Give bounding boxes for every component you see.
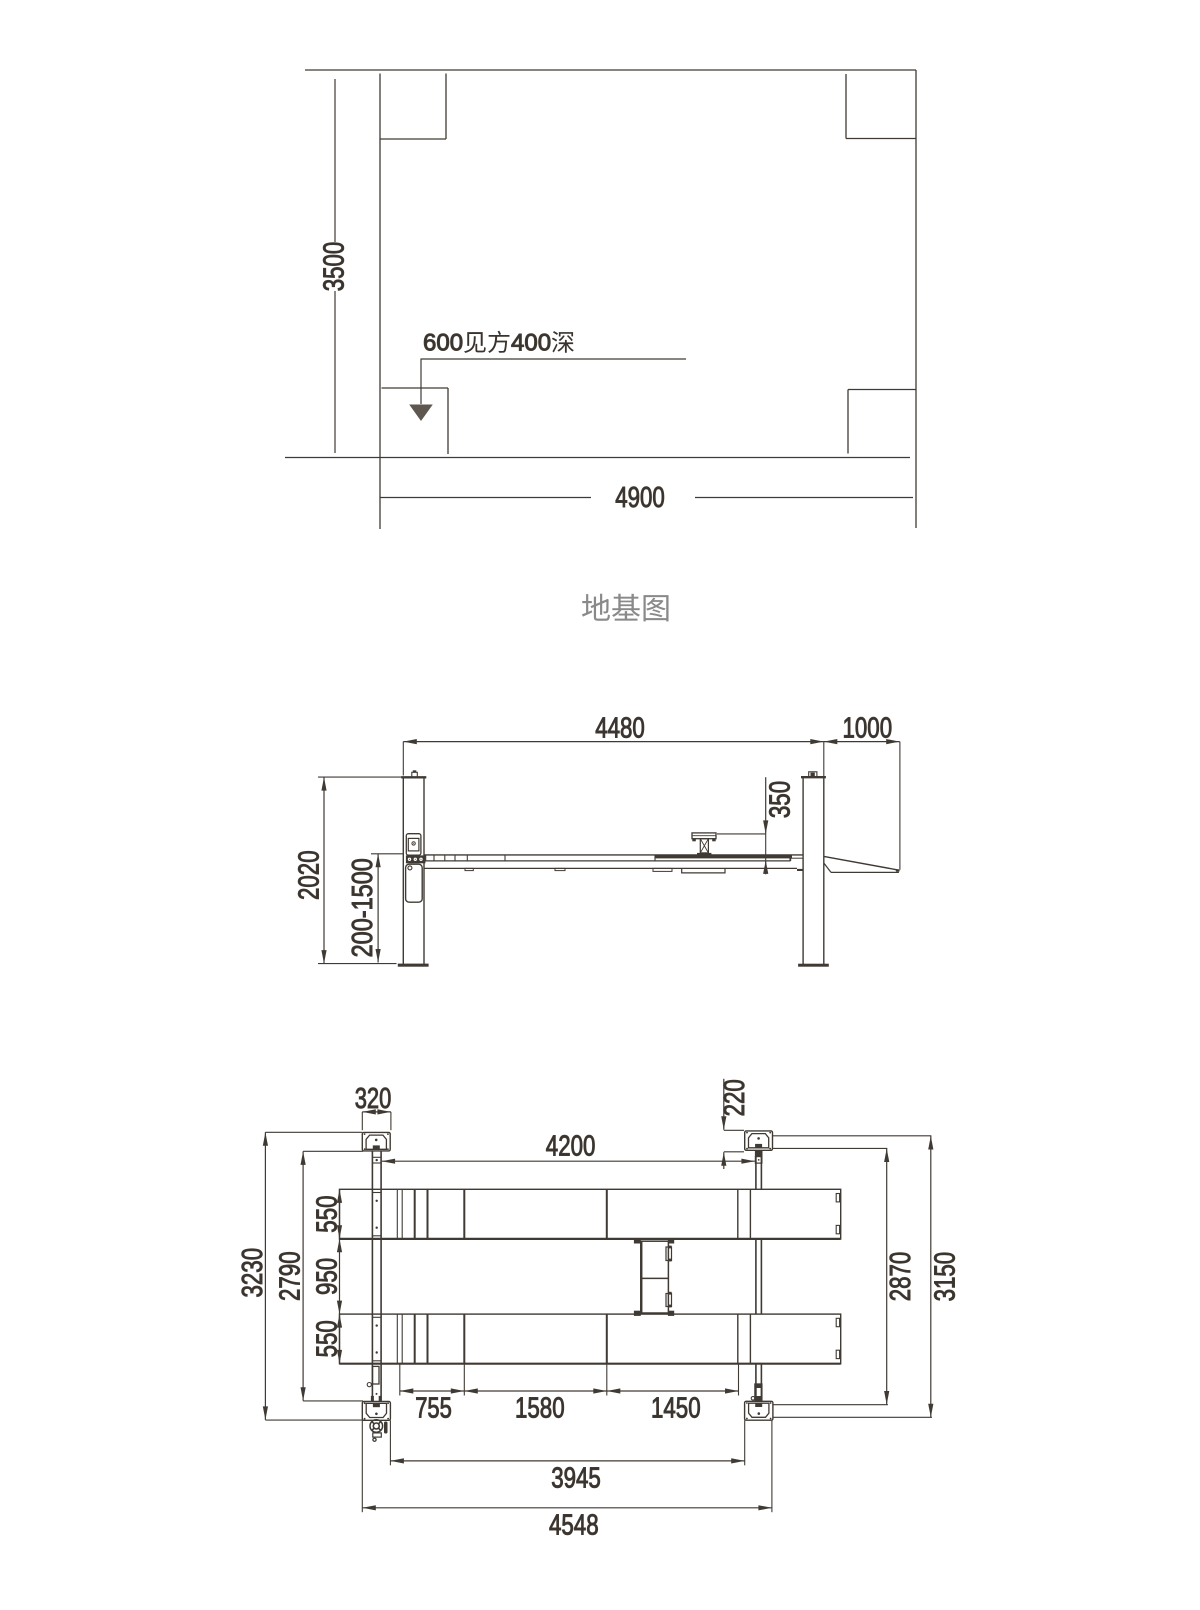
svg-text:2870: 2870 bbox=[885, 1252, 917, 1302]
svg-text:4480: 4480 bbox=[595, 713, 645, 745]
svg-text:400: 400 bbox=[511, 330, 551, 357]
svg-text:550: 550 bbox=[312, 1320, 344, 1357]
svg-text:1000: 1000 bbox=[843, 713, 893, 745]
svg-text:2790: 2790 bbox=[274, 1251, 306, 1301]
svg-text:4900: 4900 bbox=[615, 482, 665, 514]
svg-text:320: 320 bbox=[355, 1083, 392, 1115]
svg-text:550: 550 bbox=[312, 1196, 344, 1233]
svg-text:2020: 2020 bbox=[294, 850, 326, 900]
svg-text:1580: 1580 bbox=[515, 1393, 565, 1425]
svg-text:3945: 3945 bbox=[551, 1463, 601, 1495]
svg-text:3150: 3150 bbox=[929, 1252, 961, 1302]
svg-text:3500: 3500 bbox=[319, 242, 351, 292]
svg-text:4200: 4200 bbox=[546, 1131, 596, 1163]
svg-text:755: 755 bbox=[415, 1393, 452, 1425]
svg-text:350: 350 bbox=[765, 781, 797, 818]
svg-text:600: 600 bbox=[423, 330, 463, 357]
svg-text:3230: 3230 bbox=[237, 1248, 269, 1298]
svg-text:1450: 1450 bbox=[651, 1393, 701, 1425]
svg-text:4548: 4548 bbox=[549, 1510, 599, 1542]
svg-text:200-1500: 200-1500 bbox=[347, 858, 379, 957]
svg-text:950: 950 bbox=[312, 1258, 344, 1295]
